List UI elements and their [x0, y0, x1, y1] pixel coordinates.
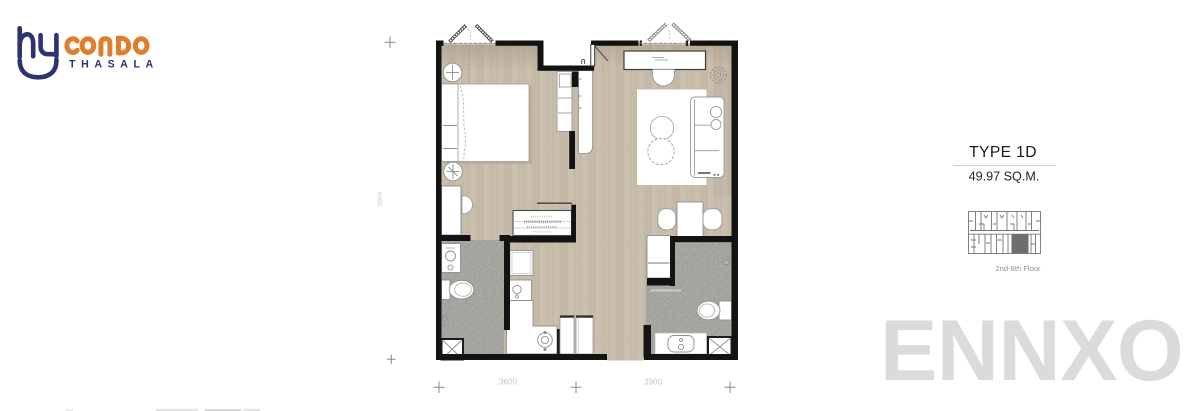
svg-text:ENNXO: ENNXO: [880, 303, 1183, 399]
svg-text:2nd-8th Floor: 2nd-8th Floor: [995, 264, 1041, 273]
svg-text:TYPE 1D: TYPE 1D: [969, 144, 1037, 161]
svg-text:49.97 SQ.M.: 49.97 SQ.M.: [969, 170, 1040, 184]
svg-text:THASALA: THASALA: [69, 59, 159, 71]
svg-text:3600: 3600: [377, 191, 384, 206]
svg-text:3600: 3600: [499, 378, 517, 387]
svg-text:3900: 3900: [644, 378, 662, 387]
